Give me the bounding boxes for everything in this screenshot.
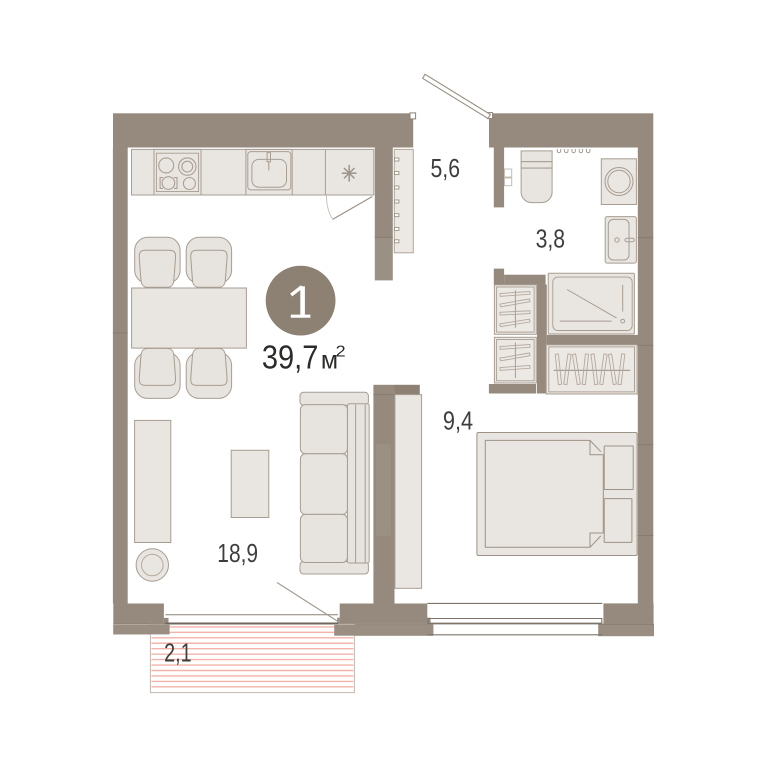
svg-text:9,4: 9,4 [443,405,473,435]
svg-text:39,7: 39,7 [262,340,319,377]
svg-text:3,8: 3,8 [536,223,566,253]
svg-text:2: 2 [336,344,346,361]
svg-text:18,9: 18,9 [217,538,258,568]
svg-text:2,1: 2,1 [164,637,192,667]
svg-text:5,6: 5,6 [431,153,461,183]
